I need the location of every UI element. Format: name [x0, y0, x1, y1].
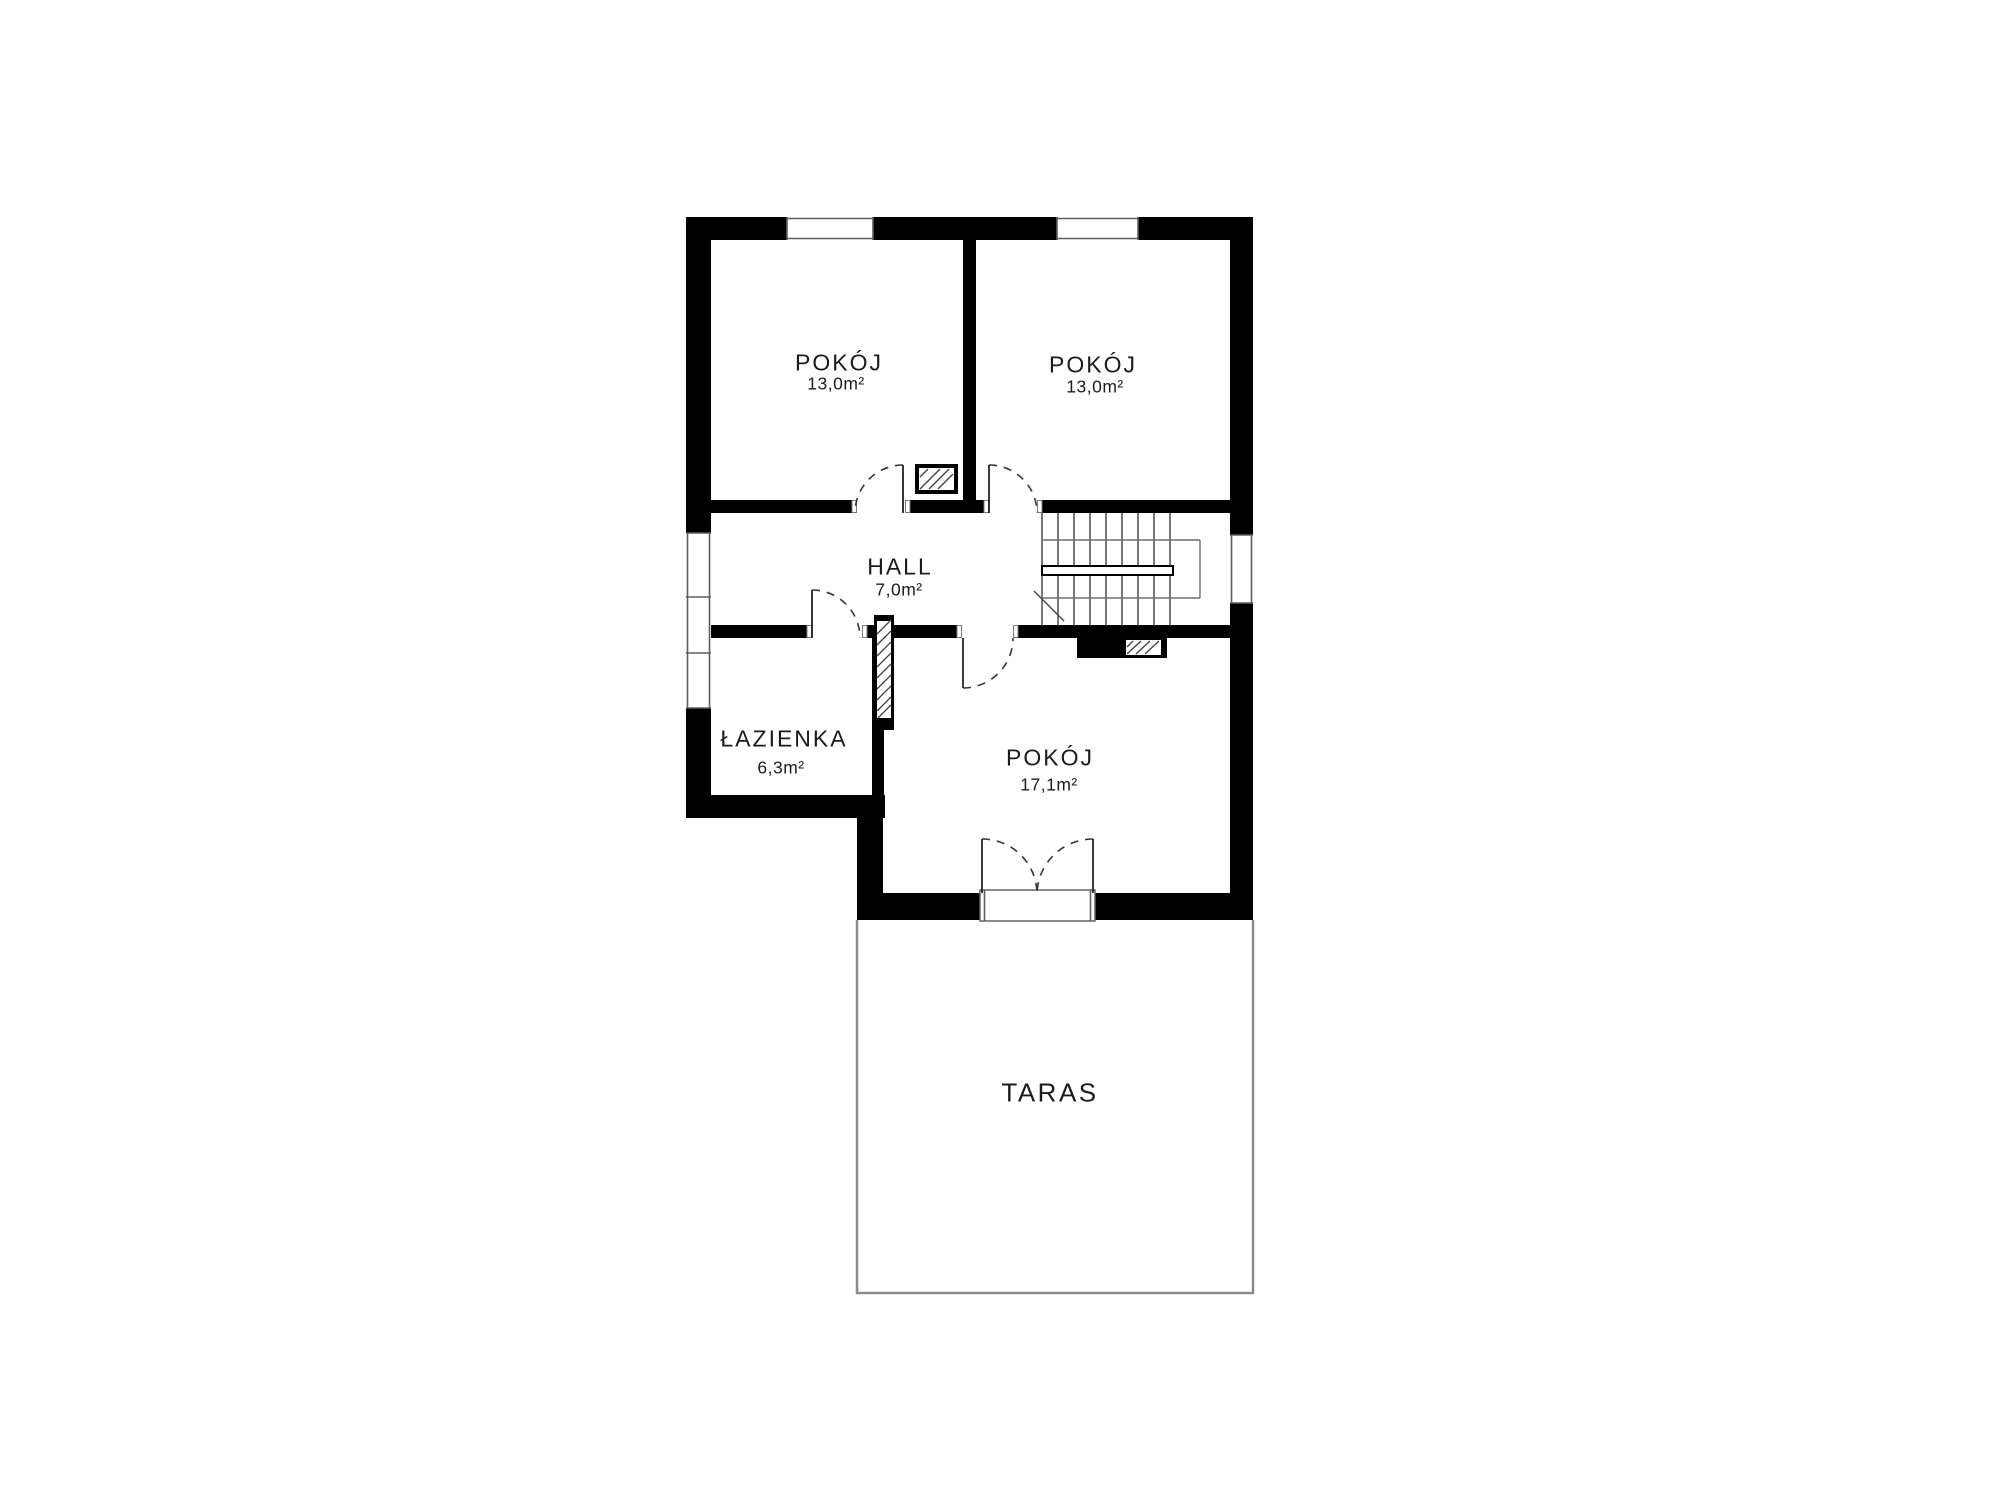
door-swing-icon	[963, 638, 1013, 688]
chimney-shaft-icon	[919, 468, 954, 490]
room-name-label: POKÓJ	[1049, 352, 1137, 379]
door-swing-icon	[812, 590, 860, 638]
room-area-label: 13,0m²	[1066, 377, 1123, 398]
room-name-label: POKÓJ	[795, 350, 883, 377]
room-name-label: TARAS	[1001, 1078, 1098, 1109]
window-icon	[787, 217, 873, 240]
floor-plan-canvas: POKÓJ 13,0m² POKÓJ 13,0m² HALL 7,0m² ŁAZ…	[0, 0, 2000, 1500]
room-area-label: 17,1m²	[1020, 775, 1077, 796]
window-icon	[686, 533, 711, 708]
room-area-label: 13,0m²	[807, 374, 864, 395]
double-door-icon	[980, 839, 1095, 921]
window-icon	[1057, 217, 1138, 240]
staircase	[1034, 513, 1200, 625]
room-name-label: POKÓJ	[1006, 745, 1094, 772]
doors	[812, 465, 1095, 921]
chimney-pillar-icon	[877, 620, 891, 718]
door-swing-icon	[989, 465, 1037, 513]
room-name-label: HALL	[867, 554, 933, 581]
stairs-handrail	[1042, 566, 1173, 575]
room-area-label: 6,3m²	[757, 758, 804, 779]
room-area-label: 7,0m²	[875, 580, 922, 601]
chimney-shaft-icon	[1126, 640, 1161, 655]
door-swing-icon	[855, 465, 903, 513]
floor-plan-drawing	[0, 0, 2000, 1500]
room-name-label: ŁAZIENKA	[720, 726, 847, 753]
window-icon	[1230, 535, 1253, 603]
